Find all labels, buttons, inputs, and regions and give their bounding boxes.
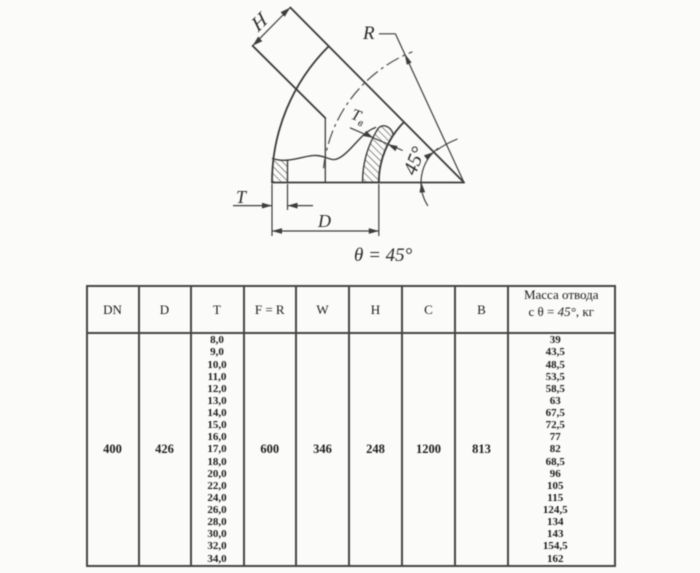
svg-text:θ = 45°: θ = 45° [354, 245, 413, 266]
svg-text:D: D [317, 211, 331, 231]
svg-text:R: R [362, 23, 375, 44]
svg-text:45°: 45° [399, 144, 430, 178]
svg-text:H: H [247, 7, 272, 37]
svg-text:T: T [236, 187, 248, 207]
